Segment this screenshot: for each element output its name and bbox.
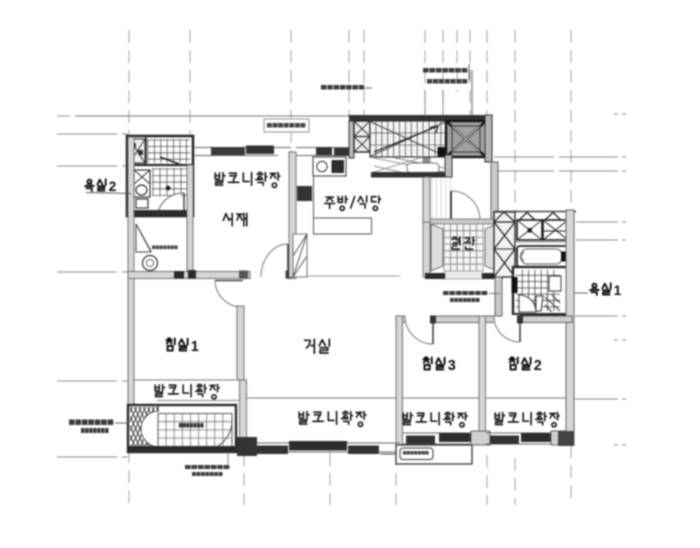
svg-text:3: 3 [448,358,456,374]
svg-text:2: 2 [109,179,117,194]
svg-text:1: 1 [614,283,622,298]
svg-text:2: 2 [534,358,542,374]
svg-text:1: 1 [191,339,199,355]
